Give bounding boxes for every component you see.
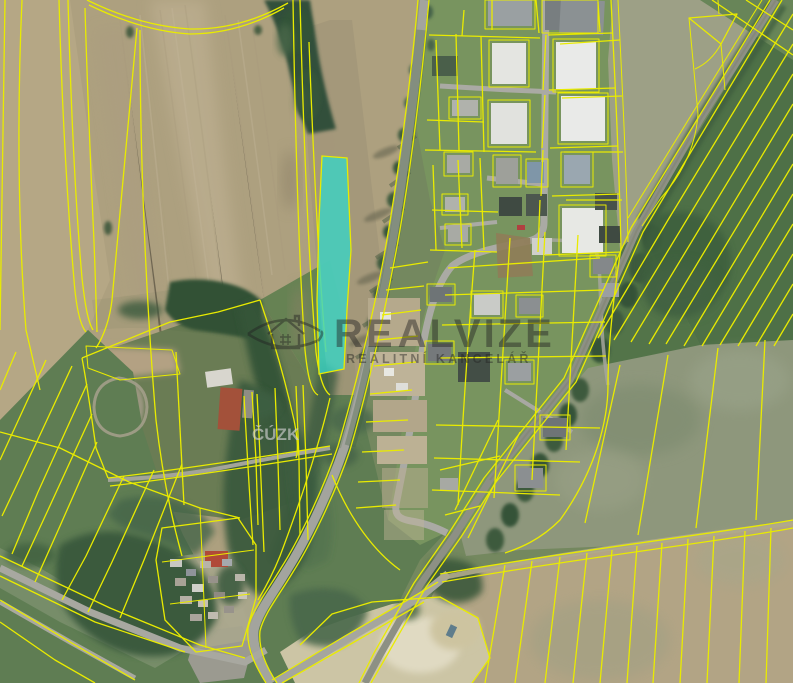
svg-text:REALVIZE: REALVIZE xyxy=(334,312,555,356)
svg-text:REALITNÍ KANCELÁŘ: REALITNÍ KANCELÁŘ xyxy=(346,351,532,366)
svg-text:ČÚZK: ČÚZK xyxy=(252,425,300,444)
